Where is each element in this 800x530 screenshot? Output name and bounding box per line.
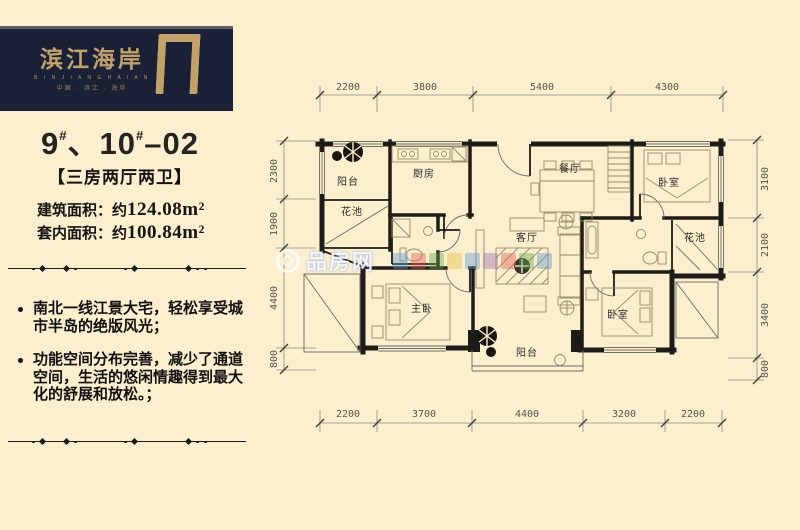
area-info: 建筑面积：约124.08m² 套内面积：约100.84m² xyxy=(37,198,205,244)
brand-logo: 滨江海岸 B I N J I A N G H A I A N 中国 · 滨江 ·… xyxy=(34,46,199,94)
unit-hash-1: # xyxy=(59,128,67,143)
room-label-living: 客厅 xyxy=(516,231,538,244)
brand-name: 滨江海岸 xyxy=(34,48,150,72)
room-label-balcony-bottom: 阳台 xyxy=(516,346,538,359)
windows xyxy=(317,139,726,354)
dim-top-2: 3800 xyxy=(413,82,437,93)
unit-number: 9#、10#–02 xyxy=(0,118,240,163)
dim-left-4: 800 xyxy=(269,350,280,368)
unit-hash-2: # xyxy=(136,128,144,143)
room-label-dining: 餐厅 xyxy=(559,162,581,175)
unit-suffix: –02 xyxy=(144,126,199,161)
dim-bottom-5: 2200 xyxy=(681,409,705,420)
inner-area-label: 套内面积：约 xyxy=(37,226,127,242)
bullet-icon xyxy=(18,358,23,363)
floor-plan: 2200 3800 5400 4300 2200 3700 4400 3200 … xyxy=(268,55,784,450)
dimension-lines-top: 2200 3800 5400 4300 xyxy=(316,82,727,112)
wardrobe xyxy=(608,146,630,192)
bed-top-right xyxy=(644,150,710,202)
bullet-icon xyxy=(18,307,23,312)
dim-right-2: 2100 xyxy=(760,233,771,257)
room-label-balcony-top: 阳台 xyxy=(337,175,359,188)
living-room-furniture xyxy=(476,215,580,315)
exterior-walls xyxy=(318,141,723,352)
dimension-lines-bottom: 2200 3700 4400 3200 2200 xyxy=(316,409,726,432)
room-label-kitchen: 厨房 xyxy=(413,167,435,180)
layout-type-tag: 【三房两厅两卫】 xyxy=(0,163,240,188)
feature-text: 南北一线江景大宅，轻松享受城市半岛的绝版风光； xyxy=(33,301,243,335)
bathroom-1-fixtures xyxy=(392,219,433,261)
inner-area-value: 100.84m² xyxy=(127,222,205,243)
room-label-bedroom-tr: 卧室 xyxy=(658,176,680,189)
feature-item: 南北一线江景大宅，轻松享受城市半岛的绝版风光； xyxy=(16,301,254,336)
feature-list: 南北一线江景大宅，轻松享受城市半岛的绝版风光； 功能空间分布完善，减少了通道空间… xyxy=(16,301,254,421)
flyer-page: 滨江海岸 B I N J I A N G H A I A N 中国 · 滨江 ·… xyxy=(0,0,800,530)
unit-number-1: 9 xyxy=(41,126,59,161)
room-label-master: 主卧 xyxy=(411,302,433,315)
room-label-flower-right: 花池 xyxy=(684,231,706,244)
dim-left-2: 1900 xyxy=(269,212,280,236)
fan-icon-balcony xyxy=(477,326,497,357)
inner-area-line: 套内面积：约100.84m² xyxy=(37,221,205,244)
dim-bottom-2: 3700 xyxy=(412,409,436,420)
brand-logo-panel: 滨江海岸 B I N J I A N G H A I A N 中国 · 滨江 ·… xyxy=(0,26,233,111)
feature-text: 功能空间分布完善，减少了通道空间，生活的悠闲情趣得到最大化的舒展和放松。； xyxy=(33,352,243,403)
dimension-lines-left: 2300 1900 4400 800 xyxy=(269,137,316,374)
dim-bottom-3: 4400 xyxy=(515,409,539,420)
unit-separator: 、 xyxy=(68,126,100,161)
dim-bottom-1: 2200 xyxy=(336,409,360,420)
room-label-flower-left: 花池 xyxy=(341,205,363,218)
brand-tagline: 中国 · 滨江 · 海岸 xyxy=(34,83,150,92)
room-label-bedroom-br: 卧室 xyxy=(607,308,629,321)
brand-latin: B I N J I A N G H A I A N xyxy=(34,75,150,81)
built-area-value: 124.08m² xyxy=(127,199,205,220)
unit-number-2: 10 xyxy=(100,126,136,161)
dim-top-4: 4300 xyxy=(655,82,679,93)
dim-right-1: 3100 xyxy=(760,167,771,191)
dim-top-1: 2200 xyxy=(336,82,360,93)
ornamental-divider-bottom xyxy=(8,437,246,446)
feature-item: 功能空间分布完善，减少了通道空间，生活的悠闲情趣得到最大化的舒展和放松。； xyxy=(16,352,254,405)
dim-left-3: 4400 xyxy=(269,286,280,310)
dimension-lines-right: 3100 2100 3400 800 xyxy=(728,136,771,384)
brand-arch-icon xyxy=(155,34,200,94)
dim-right-4: 800 xyxy=(760,360,771,378)
dim-top-3: 5400 xyxy=(530,82,554,93)
dim-left-1: 2300 xyxy=(269,159,280,183)
dim-bottom-4: 3200 xyxy=(612,409,636,420)
built-area-label: 建筑面积：约 xyxy=(37,203,127,219)
dim-right-3: 3400 xyxy=(760,303,771,327)
ornamental-divider-top xyxy=(8,264,246,273)
built-area-line: 建筑面积：约124.08m² xyxy=(37,198,205,221)
